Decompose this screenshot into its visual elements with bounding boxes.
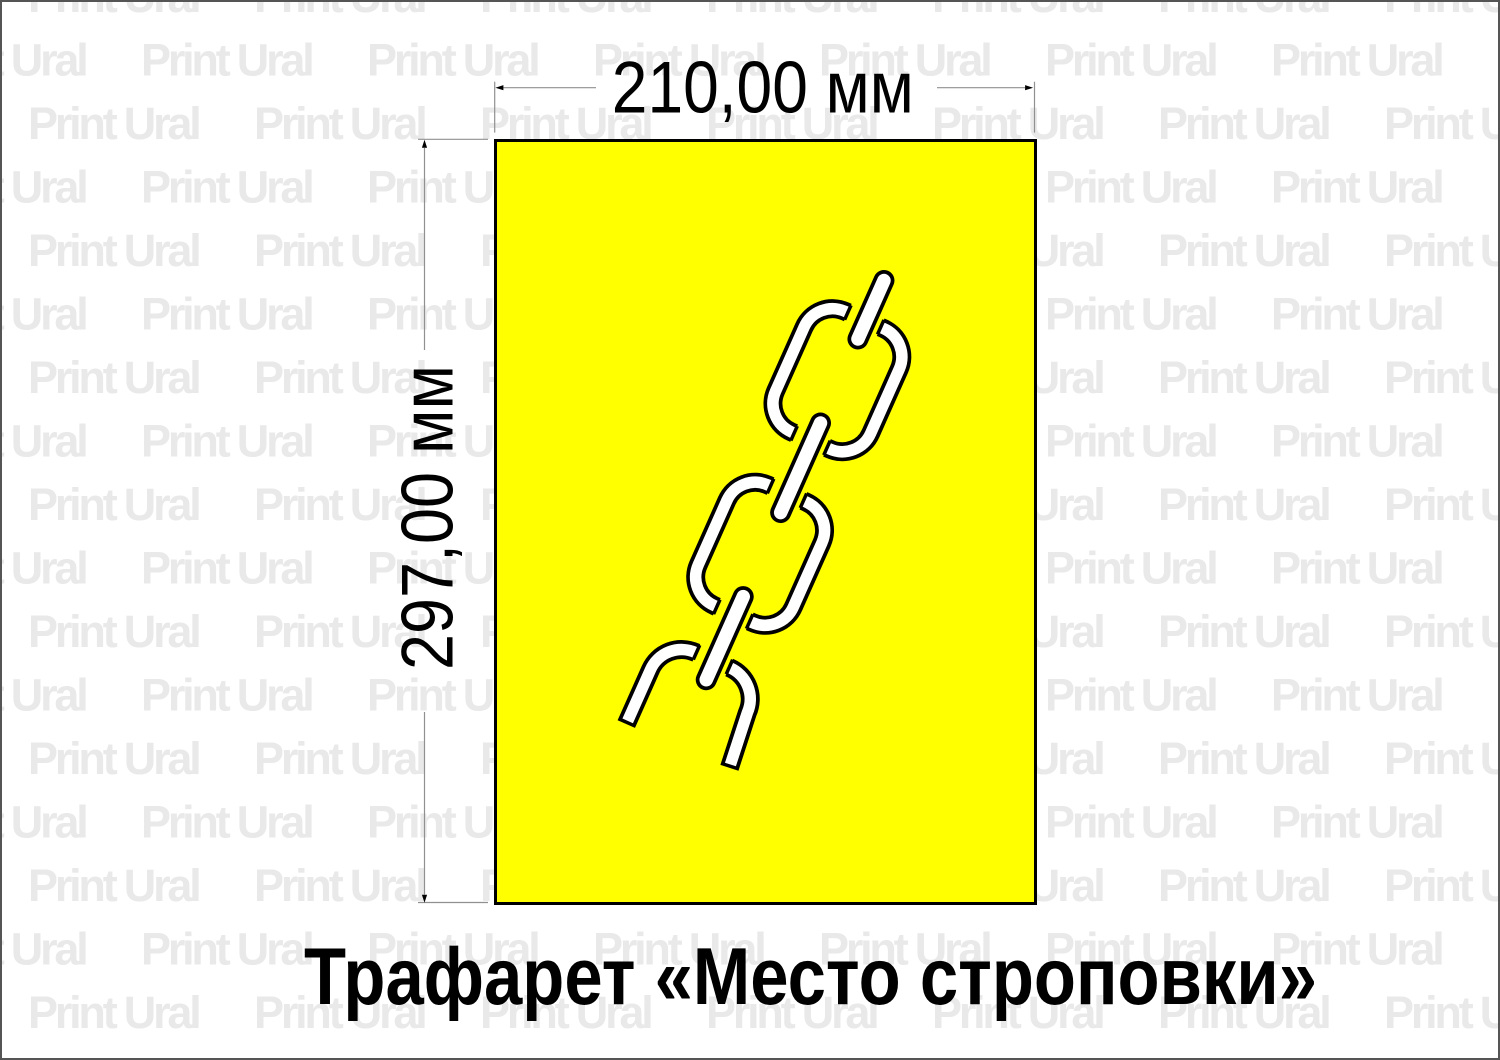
svg-text:Трафарет «Место строповки»: Трафарет «Место строповки» [304, 932, 1317, 1022]
svg-text:297,00 мм: 297,00 мм [388, 365, 469, 670]
svg-text:210,00 мм: 210,00 мм [612, 48, 914, 129]
